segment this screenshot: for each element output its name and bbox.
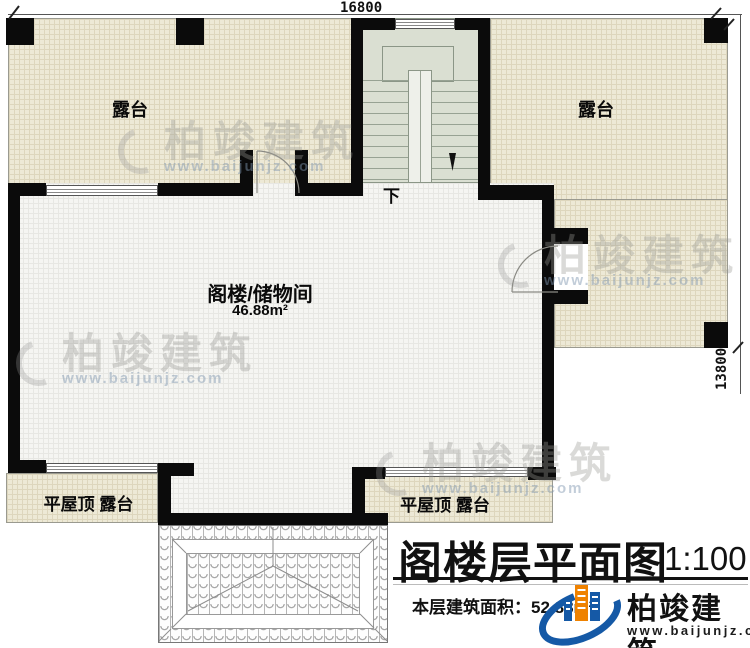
right-dimension-value: 13800 <box>714 348 730 390</box>
wall-segment <box>542 185 554 468</box>
porch-roof <box>158 525 388 643</box>
wall-segment <box>8 460 46 473</box>
wall-segment <box>8 183 46 196</box>
wall-segment <box>8 183 20 473</box>
window <box>46 463 158 473</box>
company-logo: 柏竣建筑 www.baijunjz.com <box>535 579 750 648</box>
wall-segment <box>158 183 242 196</box>
right-dimension-line <box>740 14 741 394</box>
flat-roof-terrace-left-label: 平屋顶 露台 <box>6 490 171 515</box>
logo-name: 柏竣建筑 <box>627 584 750 648</box>
terrace-left-label: 露台 <box>112 96 148 122</box>
wall-door-jamb <box>240 150 253 196</box>
wall-column <box>704 18 728 43</box>
wall-segment <box>352 467 385 479</box>
window <box>46 185 158 196</box>
wall-segment <box>295 183 363 196</box>
stair-down-label: 下 <box>383 182 400 207</box>
wall-column <box>176 18 204 45</box>
window <box>385 467 528 477</box>
attic-room-floor <box>8 183 554 468</box>
top-dimension-value: 16800 <box>340 0 382 16</box>
window <box>395 19 455 29</box>
flat-roof-terrace-right-label: 平屋顶 露台 <box>365 491 525 516</box>
terrace-right-label: 露台 <box>578 96 614 122</box>
drawing-scale: 1:100 <box>664 540 747 578</box>
right-door-opening <box>554 244 588 290</box>
attic-room-area: 46.88m² <box>160 302 360 319</box>
logo-url: www.baijunjz.com <box>627 623 750 638</box>
floor-plan: 16800 13800 <box>0 0 750 648</box>
porch-roof-inner-tiles <box>186 553 360 615</box>
wall-column <box>704 322 728 348</box>
wall-segment <box>478 18 490 188</box>
wall-segment <box>351 18 395 30</box>
wall-door-jamb <box>554 228 588 244</box>
wall-column <box>6 18 34 45</box>
wall-segment <box>528 467 556 480</box>
wall-door-jamb <box>554 288 588 304</box>
wall-segment <box>351 18 363 183</box>
logo-building-icon <box>535 579 625 648</box>
stair-stringer <box>408 70 432 183</box>
